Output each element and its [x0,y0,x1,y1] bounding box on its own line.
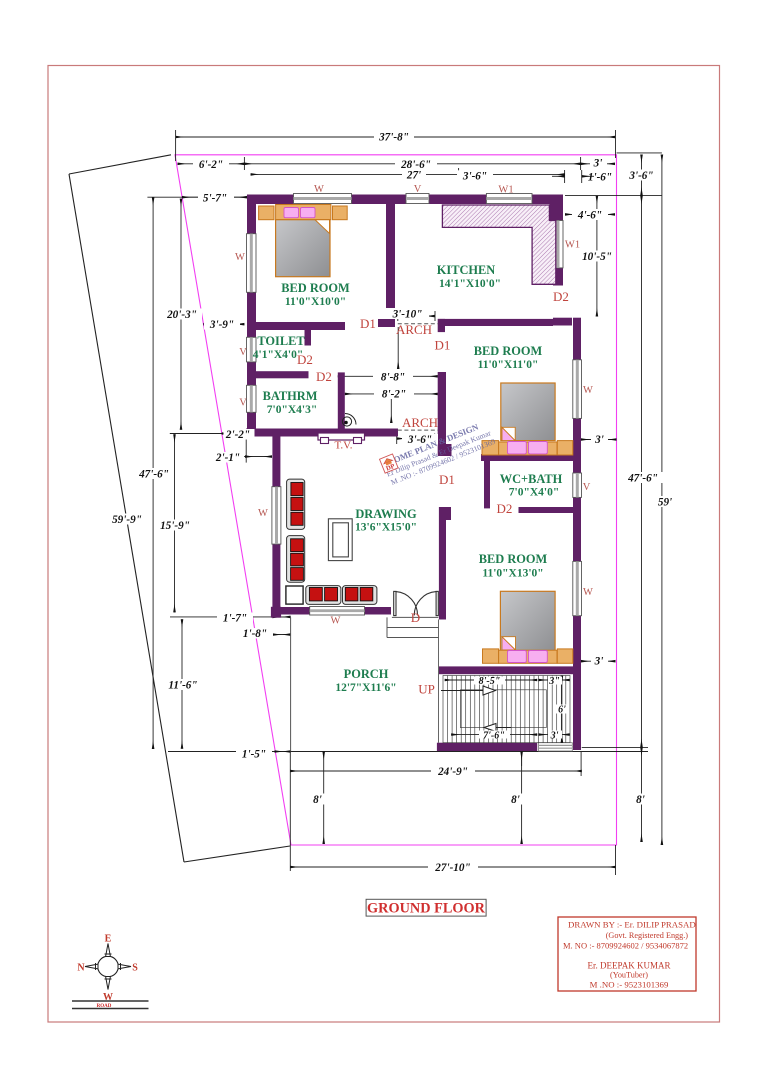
svg-text:11'0"X10'0": 11'0"X10'0" [285,296,346,308]
svg-text:BATHRM: BATHRM [263,389,318,403]
svg-text:BED ROOM: BED ROOM [474,344,543,358]
svg-text:N: N [77,963,85,974]
svg-text:ARCH: ARCH [396,322,432,337]
svg-text:3'-6": 3'-6" [462,171,487,183]
svg-text:27'-10": 27'-10" [434,862,470,874]
svg-text:GROUND FLOOR: GROUND FLOOR [367,900,486,916]
svg-text:27': 27' [406,170,421,182]
svg-text:D2: D2 [497,501,513,516]
svg-text:3': 3' [550,730,559,741]
svg-text:3': 3' [593,157,603,169]
svg-text:8'-5": 8'-5" [479,676,501,687]
svg-text:59': 59' [658,497,672,509]
svg-text:11'-6": 11'-6" [168,680,197,692]
svg-text:7'0"X4'3": 7'0"X4'3" [267,404,317,416]
svg-text:2'-2": 2'-2" [225,429,250,441]
svg-text:59'-9": 59'-9" [112,514,142,526]
svg-text:3': 3' [594,434,604,446]
svg-text:37'-8": 37'-8" [378,132,409,144]
svg-text:8'-8": 8'-8" [381,372,405,384]
svg-text:3'-6": 3'-6" [628,170,653,182]
svg-text:12'7"X11'6": 12'7"X11'6" [335,682,396,694]
svg-text:W: W [583,385,593,396]
svg-text:W: W [235,252,245,263]
svg-text:4'1"X4'0": 4'1"X4'0" [253,349,303,361]
svg-text:8'-2": 8'-2" [382,389,406,401]
svg-text:W1: W1 [498,185,513,196]
svg-text:V: V [239,398,247,409]
svg-text:T.V.: T.V. [335,440,353,452]
svg-text:ROAD: ROAD [97,1004,112,1009]
svg-text:W: W [331,616,341,627]
svg-text:11'0"X13'0": 11'0"X13'0" [482,568,543,580]
svg-text:3'-10": 3'-10" [392,308,423,320]
svg-text:D1: D1 [439,472,455,487]
svg-text:5'-7": 5'-7" [203,192,227,204]
svg-text:3'-9": 3'-9" [209,319,234,331]
svg-text:11'0"X11'0": 11'0"X11'0" [478,359,539,371]
svg-text:47'-6": 47'-6" [138,469,169,481]
svg-text:W: W [583,587,593,598]
svg-text:V: V [239,347,247,358]
svg-text:3": 3" [548,676,560,687]
svg-text:S: S [132,963,138,974]
svg-text:W1: W1 [565,240,580,251]
svg-text:V: V [583,482,591,493]
svg-text:D2: D2 [316,369,332,384]
svg-text:ARCH: ARCH [402,415,438,430]
svg-text:13'6"X15'0": 13'6"X15'0" [355,522,417,534]
svg-text:7'-6": 7'-6" [483,730,505,741]
svg-text:14'1"X10'0": 14'1"X10'0" [439,278,501,290]
svg-text:WC+BATH: WC+BATH [500,472,563,486]
svg-text:D1: D1 [435,338,451,353]
svg-text:E: E [105,934,112,945]
svg-text:47'-6": 47'-6" [627,473,658,485]
svg-text:1'-6": 1'-6" [588,171,612,183]
svg-text:D1: D1 [360,316,376,331]
svg-text:D: D [411,610,420,625]
svg-text:(Govt. Registered Engg.): (Govt. Registered Engg.) [606,931,689,940]
svg-text:DRAWN BY :- Er. DILIP PRASAD: DRAWN BY :- Er. DILIP PRASAD [568,920,696,930]
svg-text:(YouTuber): (YouTuber) [610,971,648,980]
svg-text:7'0"X4'0": 7'0"X4'0" [509,487,559,499]
svg-text:Er. DEEPAK KUMAR: Er. DEEPAK KUMAR [588,961,671,971]
svg-text:M .NO :- 9523101369: M .NO :- 9523101369 [590,980,669,990]
svg-text:1'-8": 1'-8" [243,628,267,640]
svg-text:DRAWING: DRAWING [355,507,417,521]
svg-text:4'-6": 4'-6" [577,209,602,221]
svg-text:2'-1": 2'-1" [215,452,240,464]
svg-text:1'-7": 1'-7" [223,613,247,625]
svg-text:W: W [314,184,324,195]
svg-text:W: W [258,508,268,519]
svg-text:PORCH: PORCH [344,667,389,681]
svg-text:8': 8' [313,794,322,806]
svg-text:3': 3' [594,656,604,668]
svg-text:D2: D2 [553,289,569,304]
svg-text:KITCHEN: KITCHEN [437,263,496,277]
svg-text:8': 8' [511,794,520,806]
svg-text:10'-5": 10'-5" [582,251,612,263]
svg-text:20'-3": 20'-3" [166,309,197,321]
svg-text:D2: D2 [297,352,313,367]
svg-text:UP: UP [418,682,435,697]
svg-text:24'-9": 24'-9" [437,766,468,778]
svg-text:6'-2": 6'-2" [199,159,223,171]
svg-text:TOILET: TOILET [257,334,305,348]
svg-text:BED ROOM: BED ROOM [281,281,350,295]
svg-text:8': 8' [636,794,645,806]
svg-text:1'-5": 1'-5" [242,749,266,761]
svg-text:M. NO :- 8709924602 / 95340678: M. NO :- 8709924602 / 9534067872 [563,941,688,951]
svg-text:6': 6' [558,705,566,716]
svg-text:BED ROOM: BED ROOM [479,552,548,566]
svg-text:15'-9": 15'-9" [160,520,190,532]
svg-text:V: V [414,184,422,195]
